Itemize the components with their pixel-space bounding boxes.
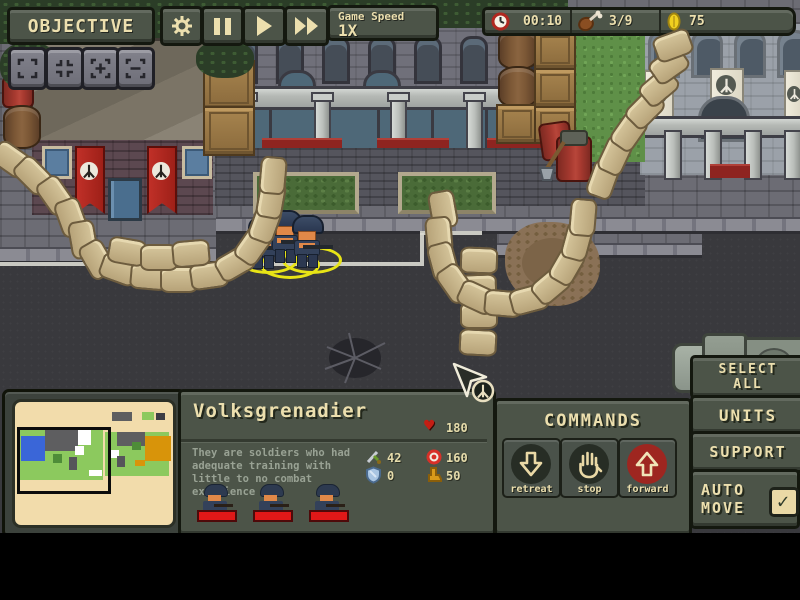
health-bar bbox=[309, 510, 349, 522]
fast-forward-icon bbox=[307, 17, 318, 35]
expand-view-button[interactable] bbox=[8, 47, 47, 90]
objective-button[interactable]: OBJECTIVE bbox=[7, 7, 155, 45]
retreat-label: retreat bbox=[504, 484, 559, 495]
pause-button[interactable] bbox=[201, 6, 244, 46]
wood-crate bbox=[203, 106, 255, 156]
stop-circle bbox=[569, 444, 609, 484]
health-bar bbox=[253, 510, 293, 522]
sandbag bbox=[458, 328, 497, 357]
shield-icon bbox=[365, 466, 382, 484]
unit-info-panel: Volksgrenadier ♥ 180 They are soldiers w… bbox=[178, 389, 496, 533]
door bbox=[108, 178, 142, 221]
units-button[interactable]: UNITS bbox=[690, 395, 800, 435]
settings-button[interactable] bbox=[160, 6, 203, 46]
wood-crate bbox=[496, 104, 538, 144]
support-label: SUPPORT bbox=[709, 443, 786, 461]
contract-icon bbox=[54, 58, 75, 79]
column-cap bbox=[311, 92, 334, 102]
arrow-up-icon bbox=[632, 449, 662, 479]
boot-icon bbox=[426, 466, 443, 483]
heart-icon: ♥ bbox=[424, 418, 434, 435]
center-view-button[interactable] bbox=[45, 47, 84, 90]
squad-soldier[interactable] bbox=[199, 484, 233, 511]
ration-count: 3/9 bbox=[609, 14, 632, 29]
zoom-out-button[interactable] bbox=[116, 47, 155, 90]
gear-icon bbox=[170, 14, 194, 38]
minimap-map[interactable] bbox=[12, 399, 176, 528]
pause-icon bbox=[225, 18, 231, 35]
column bbox=[466, 96, 483, 152]
sword-icon bbox=[365, 448, 382, 465]
crater bbox=[315, 325, 395, 391]
arrow-down-icon bbox=[516, 449, 546, 479]
game-speed-display: Game Speed 1X bbox=[327, 5, 439, 41]
wood-crate bbox=[534, 30, 576, 70]
auto-move-checkbox[interactable]: ✓ bbox=[769, 487, 799, 517]
auto-move-label: AUTO MOVE bbox=[701, 481, 759, 517]
minimap-block bbox=[142, 412, 154, 420]
divider bbox=[659, 10, 661, 33]
support-button[interactable]: SUPPORT bbox=[690, 431, 800, 473]
pause-icon bbox=[214, 18, 220, 35]
status-bar: 00:10 3/9 75 bbox=[482, 7, 796, 36]
game-screen: OBJECTIVE Game Speed 1X bbox=[0, 0, 800, 600]
minimap-panel bbox=[2, 389, 186, 533]
stop-button[interactable]: stop bbox=[560, 438, 619, 498]
minimap-block bbox=[112, 412, 132, 421]
units-label: UNITS bbox=[719, 406, 777, 425]
minimap-viewport[interactable] bbox=[17, 427, 111, 494]
forward-label: forward bbox=[620, 484, 675, 495]
soldier-unit[interactable] bbox=[291, 215, 323, 269]
minimap-block bbox=[132, 442, 141, 450]
squad-soldier[interactable] bbox=[255, 484, 289, 511]
squad-soldier[interactable] bbox=[311, 484, 345, 511]
minimap-block bbox=[135, 460, 145, 466]
sandbag bbox=[460, 246, 499, 274]
forward-button[interactable]: forward bbox=[618, 438, 677, 498]
target-icon bbox=[426, 449, 442, 465]
fast-forward-button[interactable] bbox=[284, 6, 329, 46]
unit-name: Volksgrenadier bbox=[193, 400, 367, 422]
game-speed-value: 1X bbox=[338, 21, 436, 40]
mission-timer: 00:10 bbox=[523, 14, 562, 29]
minus-icon bbox=[125, 58, 146, 79]
mouse-cursor bbox=[450, 360, 500, 404]
road-line bbox=[420, 233, 424, 266]
stat-range: 160 bbox=[446, 451, 468, 465]
stop-label: stop bbox=[562, 484, 617, 495]
zoom-in-button[interactable] bbox=[81, 47, 120, 90]
forward-circle-active bbox=[627, 444, 667, 484]
battlefield-view[interactable]: OBJECTIVE Game Speed 1X bbox=[0, 0, 800, 533]
hand-icon bbox=[574, 449, 604, 479]
sandbag bbox=[258, 155, 288, 195]
unit-hp: 180 bbox=[446, 421, 468, 435]
gold-count: 75 bbox=[689, 14, 705, 29]
play-icon bbox=[257, 16, 272, 36]
minimap-block bbox=[156, 413, 165, 420]
minimap-block bbox=[117, 456, 125, 467]
column bbox=[784, 130, 800, 180]
divider bbox=[570, 10, 572, 33]
ration-icon bbox=[577, 10, 603, 33]
wood-barrel bbox=[498, 66, 538, 108]
shovel-icon bbox=[536, 138, 570, 184]
fast-forward-icon bbox=[295, 17, 306, 35]
select-all-button[interactable]: SELECT ALL bbox=[690, 355, 800, 399]
auto-move-button[interactable]: AUTO MOVE ✓ bbox=[690, 469, 800, 529]
stat-attack: 42 bbox=[387, 451, 401, 465]
column-cap bbox=[387, 92, 410, 102]
column-cap bbox=[463, 92, 486, 102]
play-button[interactable] bbox=[242, 6, 286, 46]
commands-title: COMMANDS bbox=[497, 411, 689, 431]
health-bar bbox=[197, 510, 237, 522]
stat-speed: 50 bbox=[446, 469, 460, 483]
retreat-button[interactable]: retreat bbox=[502, 438, 561, 498]
letterbox bbox=[0, 533, 800, 600]
select-all-label: SELECT ALL bbox=[706, 362, 790, 392]
sandbag bbox=[568, 197, 598, 237]
stat-armor: 0 bbox=[387, 469, 394, 483]
divider bbox=[181, 439, 487, 443]
objective-label: OBJECTIVE bbox=[28, 16, 135, 37]
plus-icon bbox=[90, 58, 111, 79]
clock-icon bbox=[491, 12, 510, 31]
red-carpet bbox=[710, 164, 750, 178]
wood-crate bbox=[534, 68, 576, 108]
minimap-block bbox=[145, 436, 171, 461]
sandbag bbox=[171, 238, 211, 268]
retreat-circle bbox=[511, 444, 551, 484]
column bbox=[664, 130, 682, 180]
expand-icon bbox=[17, 58, 38, 79]
